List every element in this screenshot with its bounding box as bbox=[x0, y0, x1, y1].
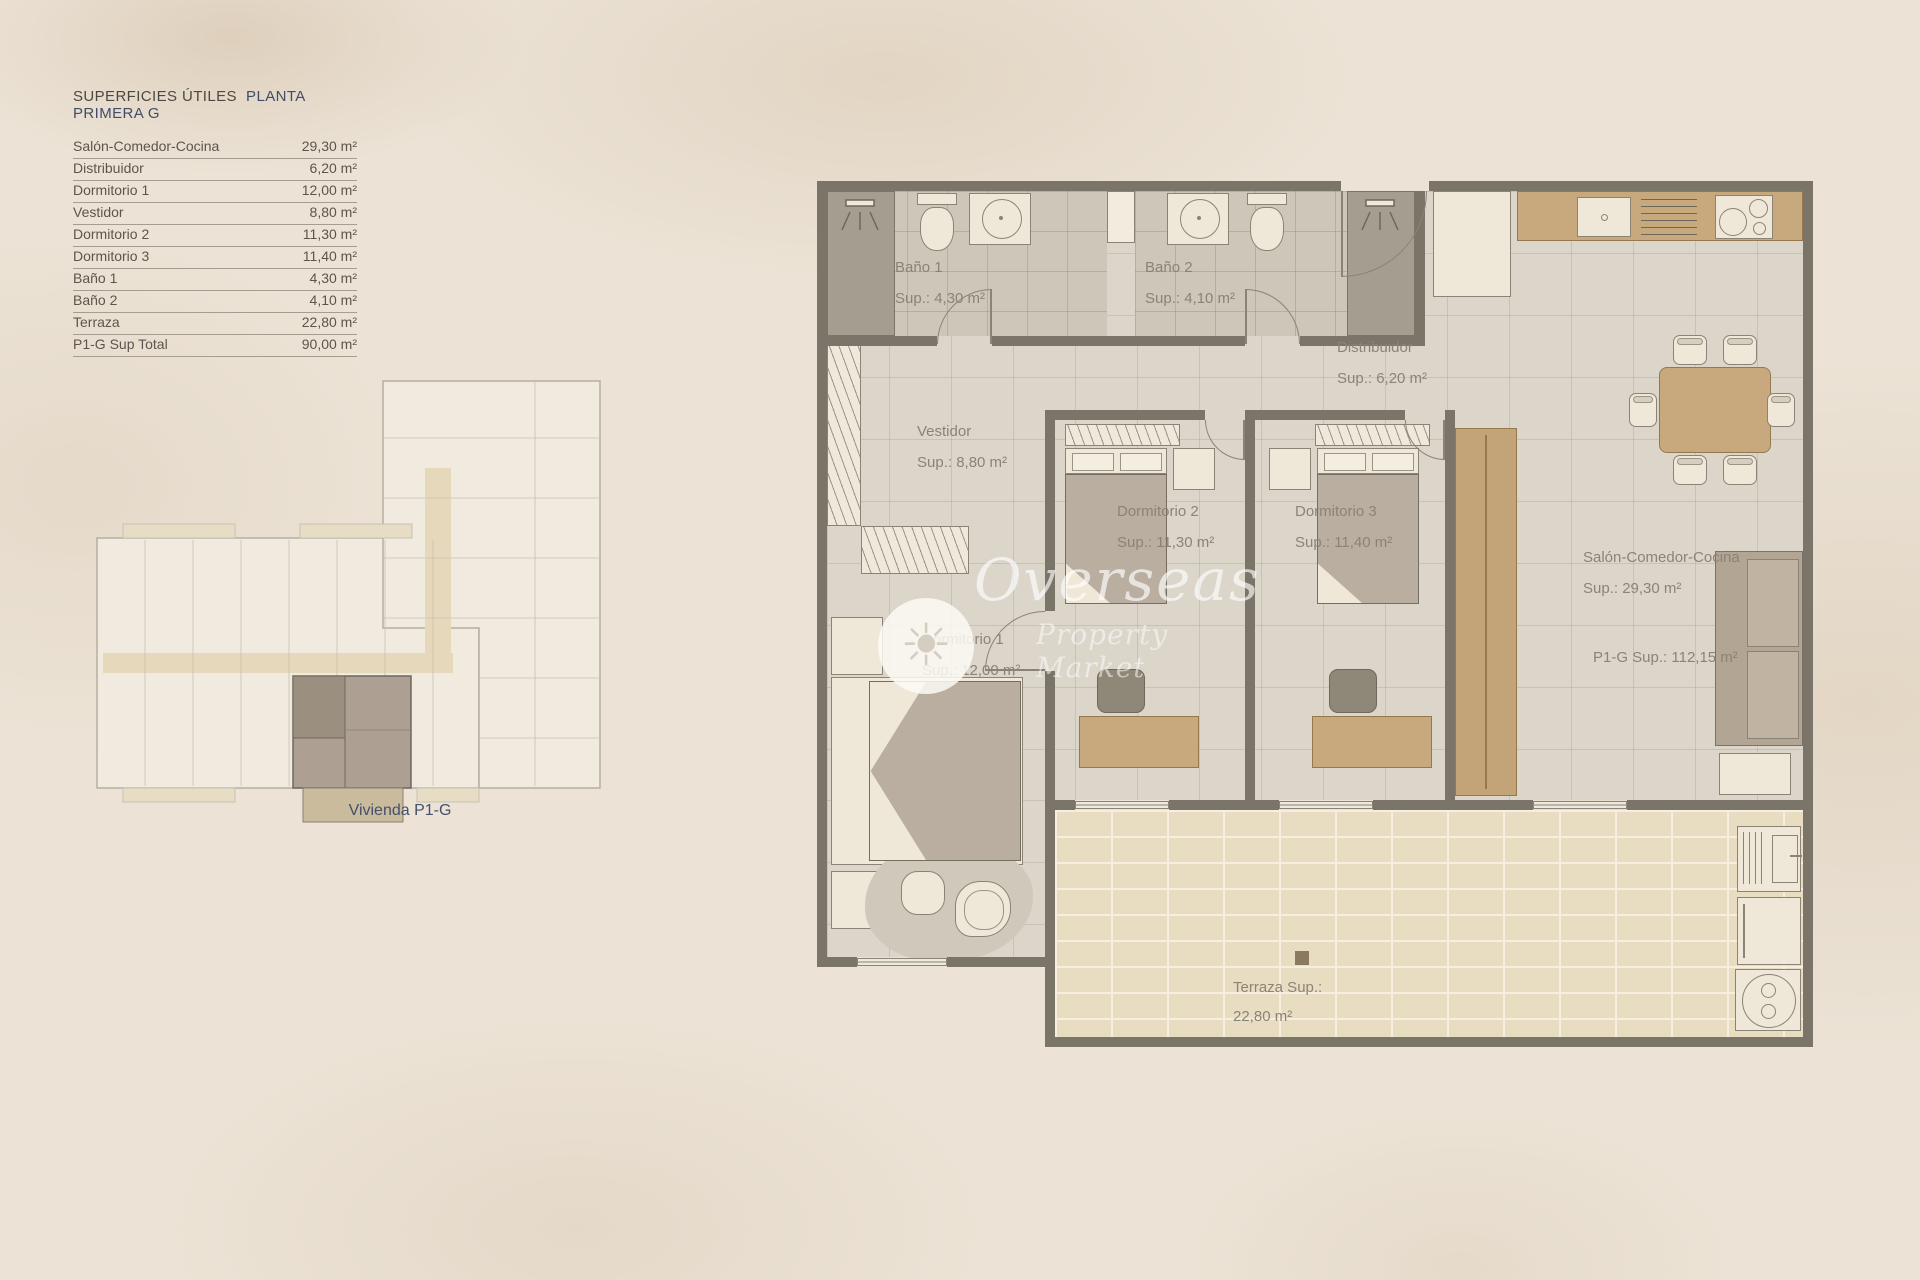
wall bbox=[947, 957, 1045, 967]
nightstand bbox=[1173, 448, 1215, 490]
bedroom3-door-leaf bbox=[1443, 420, 1445, 460]
dining-table bbox=[1659, 367, 1771, 453]
row-value: 4,30 m² bbox=[310, 269, 357, 288]
room-label-dormitorio1: Dormitorio 1 Sup.: 12,00 m² bbox=[922, 631, 1020, 679]
room-sup: Sup.: 4,30 m² bbox=[895, 290, 985, 307]
row-label: Salón-Comedor-Cocina bbox=[73, 137, 219, 156]
desk bbox=[1312, 716, 1432, 768]
overview-plan bbox=[95, 378, 605, 831]
toilet-icon bbox=[1250, 207, 1284, 251]
row-label: Baño 2 bbox=[73, 291, 117, 310]
wall bbox=[1045, 1037, 1813, 1047]
hob-icon bbox=[1715, 195, 1773, 239]
table-row: Dormitorio 211,30 m² bbox=[73, 225, 357, 247]
dining-chair bbox=[1723, 335, 1757, 365]
room-sup: Sup.: 11,40 m² bbox=[1295, 534, 1392, 551]
room-name: Baño 2 bbox=[1145, 259, 1235, 276]
total-area-label: P1-G Sup.: 112,15 m² bbox=[1593, 649, 1738, 666]
room-label-bano1: Baño 1 Sup.: 4,30 m² bbox=[895, 259, 985, 307]
room-name: Terraza Sup.: bbox=[1233, 979, 1322, 996]
wall bbox=[1445, 420, 1455, 800]
row-value: 4,10 m² bbox=[310, 291, 357, 310]
bedroom2-door-leaf bbox=[1243, 420, 1245, 460]
armchair bbox=[955, 881, 1011, 937]
wall bbox=[1429, 181, 1813, 191]
room-label-bano2: Baño 2 Sup.: 4,10 m² bbox=[1145, 259, 1235, 307]
wall bbox=[1135, 336, 1245, 346]
wall bbox=[817, 181, 827, 967]
row-label: Dormitorio 1 bbox=[73, 181, 149, 200]
row-label: Distribuidor bbox=[73, 159, 144, 178]
pouf bbox=[901, 871, 945, 915]
room-label-terraza: Terraza Sup.: 22,80 m² bbox=[1233, 979, 1322, 1025]
row-value: 12,00 m² bbox=[302, 181, 357, 200]
floor-plan: Baño 1 Sup.: 4,30 m² Baño 2 Sup.: 4,10 m… bbox=[817, 181, 1813, 1047]
terrace-slider bbox=[1075, 801, 1169, 809]
room-sup: Sup.: 12,00 m² bbox=[922, 662, 1020, 679]
wall bbox=[1445, 410, 1455, 420]
dining-chair bbox=[1767, 393, 1795, 427]
room-label-dormitorio3: Dormitorio 3 Sup.: 11,40 m² bbox=[1295, 503, 1392, 551]
room-sup: Sup.: 11,30 m² bbox=[1117, 534, 1214, 551]
wall bbox=[817, 957, 857, 967]
table-row: P1-G Sup Total90,00 m² bbox=[73, 335, 357, 357]
shower-1 bbox=[827, 191, 895, 336]
table-row: Baño 24,10 m² bbox=[73, 291, 357, 313]
table-title-left: SUPERFICIES ÚTILES bbox=[73, 88, 237, 105]
wall bbox=[1245, 420, 1255, 800]
wall bbox=[1373, 800, 1533, 810]
bedroom1-window bbox=[857, 958, 947, 966]
room-label-distribuidor: Distribuidor Sup.: 6,20 m² bbox=[1337, 339, 1427, 387]
entry-closet bbox=[1433, 191, 1511, 297]
row-label: Dormitorio 3 bbox=[73, 247, 149, 266]
sink-icon bbox=[969, 193, 1031, 245]
room-label-vestidor: Vestidor Sup.: 8,80 m² bbox=[917, 423, 1007, 471]
row-value: 6,20 m² bbox=[310, 159, 357, 178]
row-value: 8,80 m² bbox=[310, 203, 357, 222]
room-name: Vestidor bbox=[917, 423, 1007, 440]
dining-chair bbox=[1673, 335, 1707, 365]
entry-door-leaf bbox=[1341, 191, 1343, 277]
wall bbox=[1803, 181, 1813, 1047]
table-row: Dormitorio 311,40 m² bbox=[73, 247, 357, 269]
toilet-icon bbox=[917, 193, 957, 205]
shower-icon bbox=[832, 198, 892, 238]
wall bbox=[817, 181, 1341, 191]
kitchen-sink-icon bbox=[1577, 197, 1631, 237]
nightstand bbox=[831, 617, 883, 675]
wardrobe-hatch bbox=[827, 341, 861, 526]
shaft bbox=[1107, 191, 1135, 243]
terrace-sink-icon bbox=[1737, 826, 1801, 892]
room-name: Distribuidor bbox=[1337, 339, 1427, 356]
terrace-drain bbox=[1295, 951, 1309, 965]
room-name: Dormitorio 1 bbox=[922, 631, 1020, 648]
bath2-door-leaf bbox=[1245, 289, 1247, 344]
dining-chair bbox=[1723, 455, 1757, 485]
table-row: Baño 14,30 m² bbox=[73, 269, 357, 291]
room-sup: 22,80 m² bbox=[1233, 1008, 1322, 1025]
wall bbox=[827, 336, 937, 346]
area-table: SUPERFICIES ÚTILES PLANTA PRIMERA G Saló… bbox=[73, 88, 357, 357]
room-name: Dormitorio 3 bbox=[1295, 503, 1392, 520]
overview-plan-drawing bbox=[95, 378, 605, 826]
terrace-cabinet bbox=[1737, 897, 1801, 965]
wall bbox=[1045, 800, 1075, 810]
sofa-cushion bbox=[1747, 651, 1799, 739]
table-row: Dormitorio 112,00 m² bbox=[73, 181, 357, 203]
room-label-salon: Salón-Comedor-Cocina Sup.: 29,30 m² bbox=[1583, 549, 1740, 597]
room-sup: Sup.: 8,80 m² bbox=[917, 454, 1007, 471]
row-value: 90,00 m² bbox=[302, 335, 357, 354]
row-label: Baño 1 bbox=[73, 269, 117, 288]
dining-chair bbox=[1629, 393, 1657, 427]
overview-highlight-unit bbox=[293, 676, 411, 822]
row-value: 22,80 m² bbox=[302, 313, 357, 332]
overview-caption: Vivienda P1-G bbox=[300, 802, 500, 820]
wall bbox=[1255, 410, 1405, 420]
wall bbox=[1045, 671, 1055, 1047]
wall bbox=[1627, 800, 1813, 810]
wardrobe-hatch bbox=[861, 526, 969, 574]
wall bbox=[1055, 410, 1205, 420]
sliding-wardrobe bbox=[1455, 428, 1517, 796]
table-title: SUPERFICIES ÚTILES PLANTA PRIMERA G bbox=[73, 88, 357, 122]
row-value: 11,30 m² bbox=[303, 225, 357, 244]
dining-chair bbox=[1673, 455, 1707, 485]
closet-hatch bbox=[1065, 424, 1180, 446]
terrace-slider bbox=[1279, 801, 1373, 809]
room-name: Dormitorio 2 bbox=[1117, 503, 1214, 520]
terrace-slider bbox=[1533, 801, 1627, 809]
table-row: Salón-Comedor-Cocina29,30 m² bbox=[73, 137, 357, 159]
row-label: Vestidor bbox=[73, 203, 124, 222]
row-value: 11,40 m² bbox=[303, 247, 357, 266]
table-row: Vestidor8,80 m² bbox=[73, 203, 357, 225]
tv-unit bbox=[1719, 753, 1791, 795]
table-row: Terraza22,80 m² bbox=[73, 313, 357, 335]
room-sup: Sup.: 29,30 m² bbox=[1583, 580, 1740, 597]
room-name: Baño 1 bbox=[895, 259, 985, 276]
row-label: Terraza bbox=[73, 313, 120, 332]
wall bbox=[1245, 410, 1255, 420]
row-label: P1-G Sup Total bbox=[73, 335, 168, 354]
bed-pillows bbox=[1065, 448, 1167, 474]
sink-icon bbox=[1167, 193, 1229, 245]
bed-pillows bbox=[1317, 448, 1419, 474]
table-row: Distribuidor6,20 m² bbox=[73, 159, 357, 181]
room-name: Salón-Comedor-Cocina bbox=[1583, 549, 1740, 566]
desk-chair bbox=[1097, 669, 1145, 713]
room-sup: Sup.: 4,10 m² bbox=[1145, 290, 1235, 307]
wall bbox=[1045, 410, 1055, 611]
wall bbox=[1169, 800, 1279, 810]
room-label-dormitorio2: Dormitorio 2 Sup.: 11,30 m² bbox=[1117, 503, 1214, 551]
drainboard-icon bbox=[1641, 199, 1697, 235]
toilet-icon bbox=[1247, 193, 1287, 205]
sofa-cushion bbox=[1747, 559, 1799, 647]
room-sup: Sup.: 6,20 m² bbox=[1337, 370, 1427, 387]
nightstand bbox=[1269, 448, 1311, 490]
terrace-basin-icon bbox=[1735, 969, 1801, 1031]
row-value: 29,30 m² bbox=[302, 137, 357, 156]
bed-duvet bbox=[869, 681, 1021, 861]
desk bbox=[1079, 716, 1199, 768]
wall bbox=[992, 336, 1135, 346]
terrace-floor bbox=[1055, 810, 1803, 1037]
desk-chair bbox=[1329, 669, 1377, 713]
toilet-icon bbox=[920, 207, 954, 251]
row-label: Dormitorio 2 bbox=[73, 225, 149, 244]
bath1-door-leaf bbox=[990, 289, 992, 344]
